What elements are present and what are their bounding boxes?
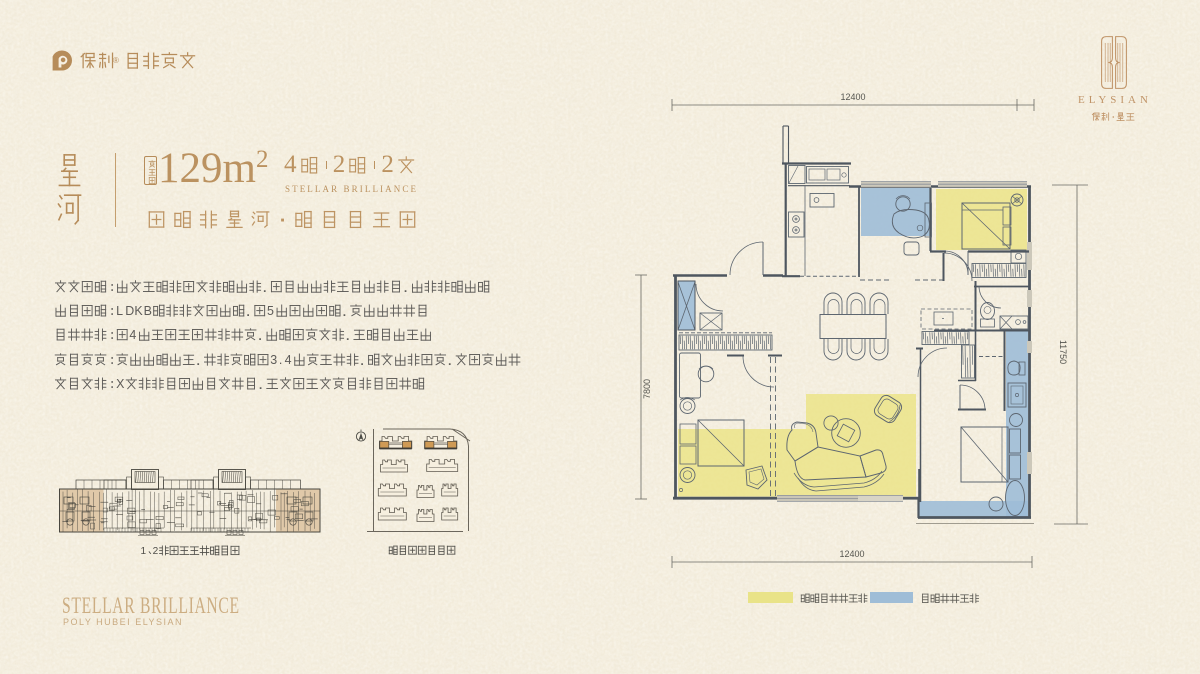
svg-text:12400: 12400	[840, 92, 865, 102]
svg-text:11750: 11750	[1058, 340, 1068, 364]
svg-text:7800: 7800	[642, 379, 652, 399]
svg-text:12400: 12400	[839, 549, 864, 559]
